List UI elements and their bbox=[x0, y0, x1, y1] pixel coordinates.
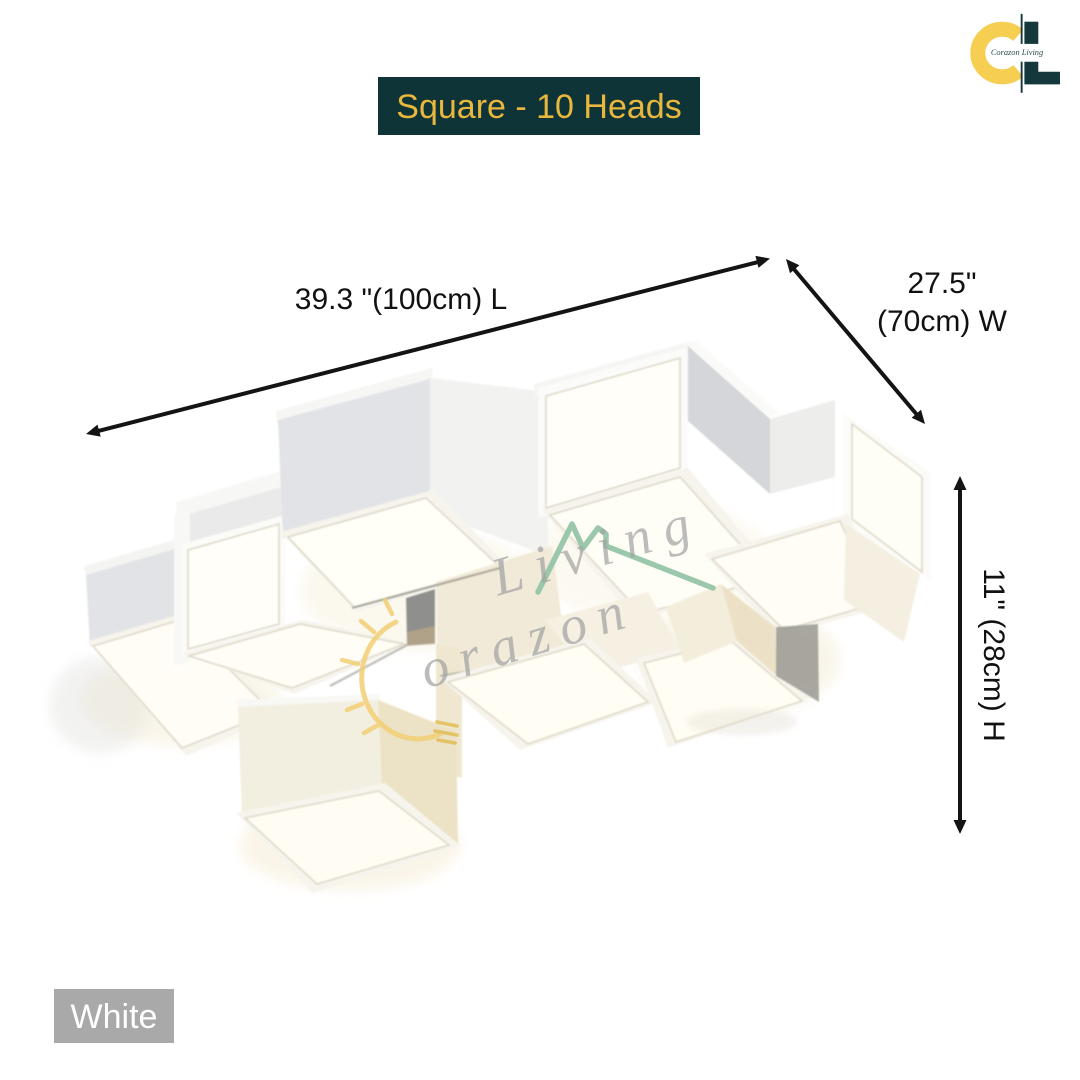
svg-text:39.3 "(100cm) L: 39.3 "(100cm) L bbox=[295, 283, 507, 316]
svg-text:11" (28cm) H: 11" (28cm) H bbox=[977, 568, 1010, 741]
svg-text:Square - 10 Heads: Square - 10 Heads bbox=[396, 88, 681, 126]
svg-text:(70cm) W: (70cm) W bbox=[877, 305, 1008, 338]
svg-text:White: White bbox=[71, 998, 158, 1036]
svg-text:Corazon Living: Corazon Living bbox=[991, 48, 1043, 57]
svg-text:27.5": 27.5" bbox=[907, 267, 976, 300]
